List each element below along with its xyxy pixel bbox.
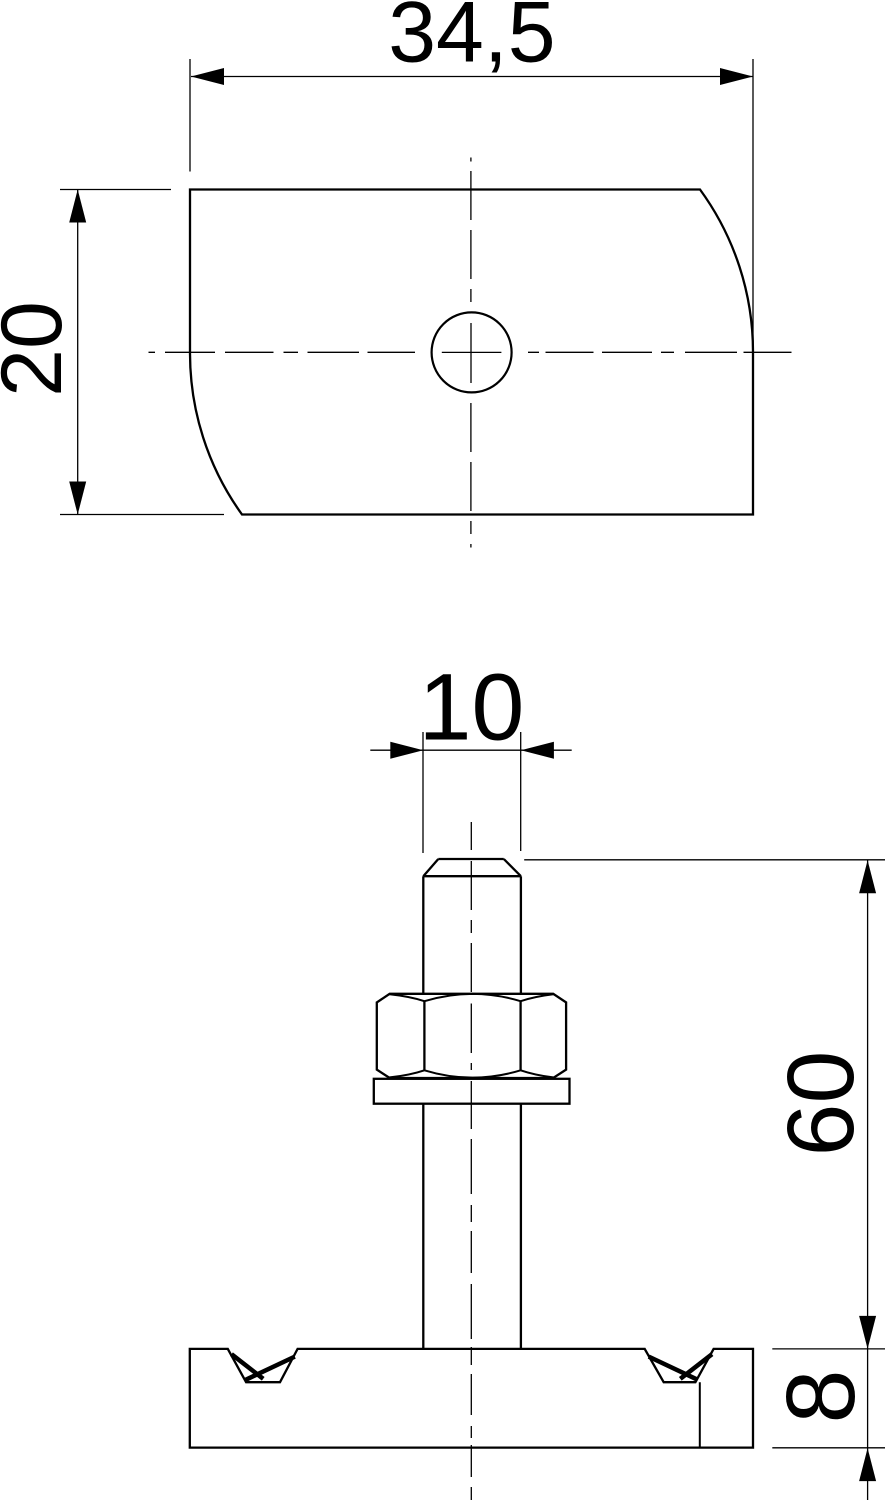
svg-text:8: 8: [766, 1370, 875, 1424]
svg-text:34,5: 34,5: [388, 0, 555, 81]
svg-text:60: 60: [768, 1051, 874, 1157]
svg-text:20: 20: [0, 301, 80, 397]
svg-text:10: 10: [419, 654, 525, 760]
